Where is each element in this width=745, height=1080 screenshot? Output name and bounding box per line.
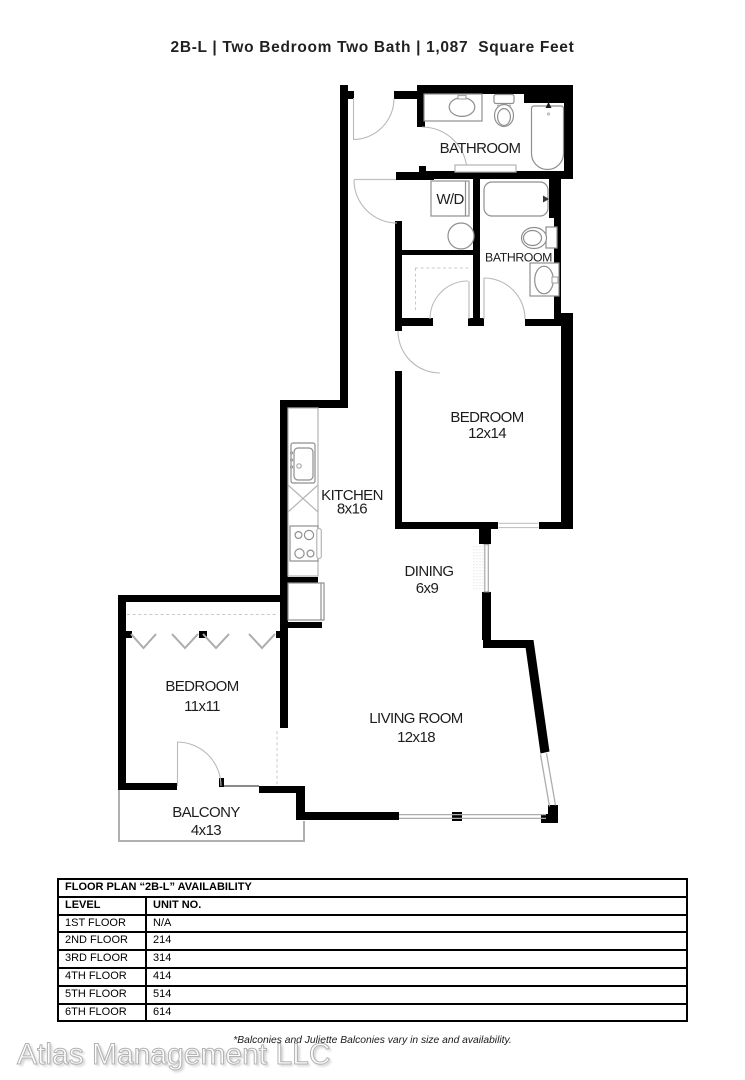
svg-text:12x18: 12x18	[397, 729, 435, 746]
svg-text:4x13: 4x13	[191, 822, 221, 839]
svg-text:BEDROOM: BEDROOM	[450, 409, 523, 426]
svg-text:11x11: 11x11	[184, 698, 220, 715]
svg-text:6x9: 6x9	[416, 580, 439, 597]
svg-text:12x14: 12x14	[468, 425, 506, 442]
svg-text:BEDROOM: BEDROOM	[165, 678, 238, 695]
svg-text:BATHROOM: BATHROOM	[440, 140, 521, 157]
svg-text:DINING: DINING	[405, 563, 454, 580]
svg-text:BALCONY: BALCONY	[172, 804, 240, 821]
svg-text:8x16: 8x16	[337, 501, 367, 518]
svg-text:W/D: W/D	[436, 191, 464, 208]
svg-text:LIVING ROOM: LIVING ROOM	[369, 710, 463, 727]
svg-text:BATHROOM: BATHROOM	[485, 251, 552, 265]
